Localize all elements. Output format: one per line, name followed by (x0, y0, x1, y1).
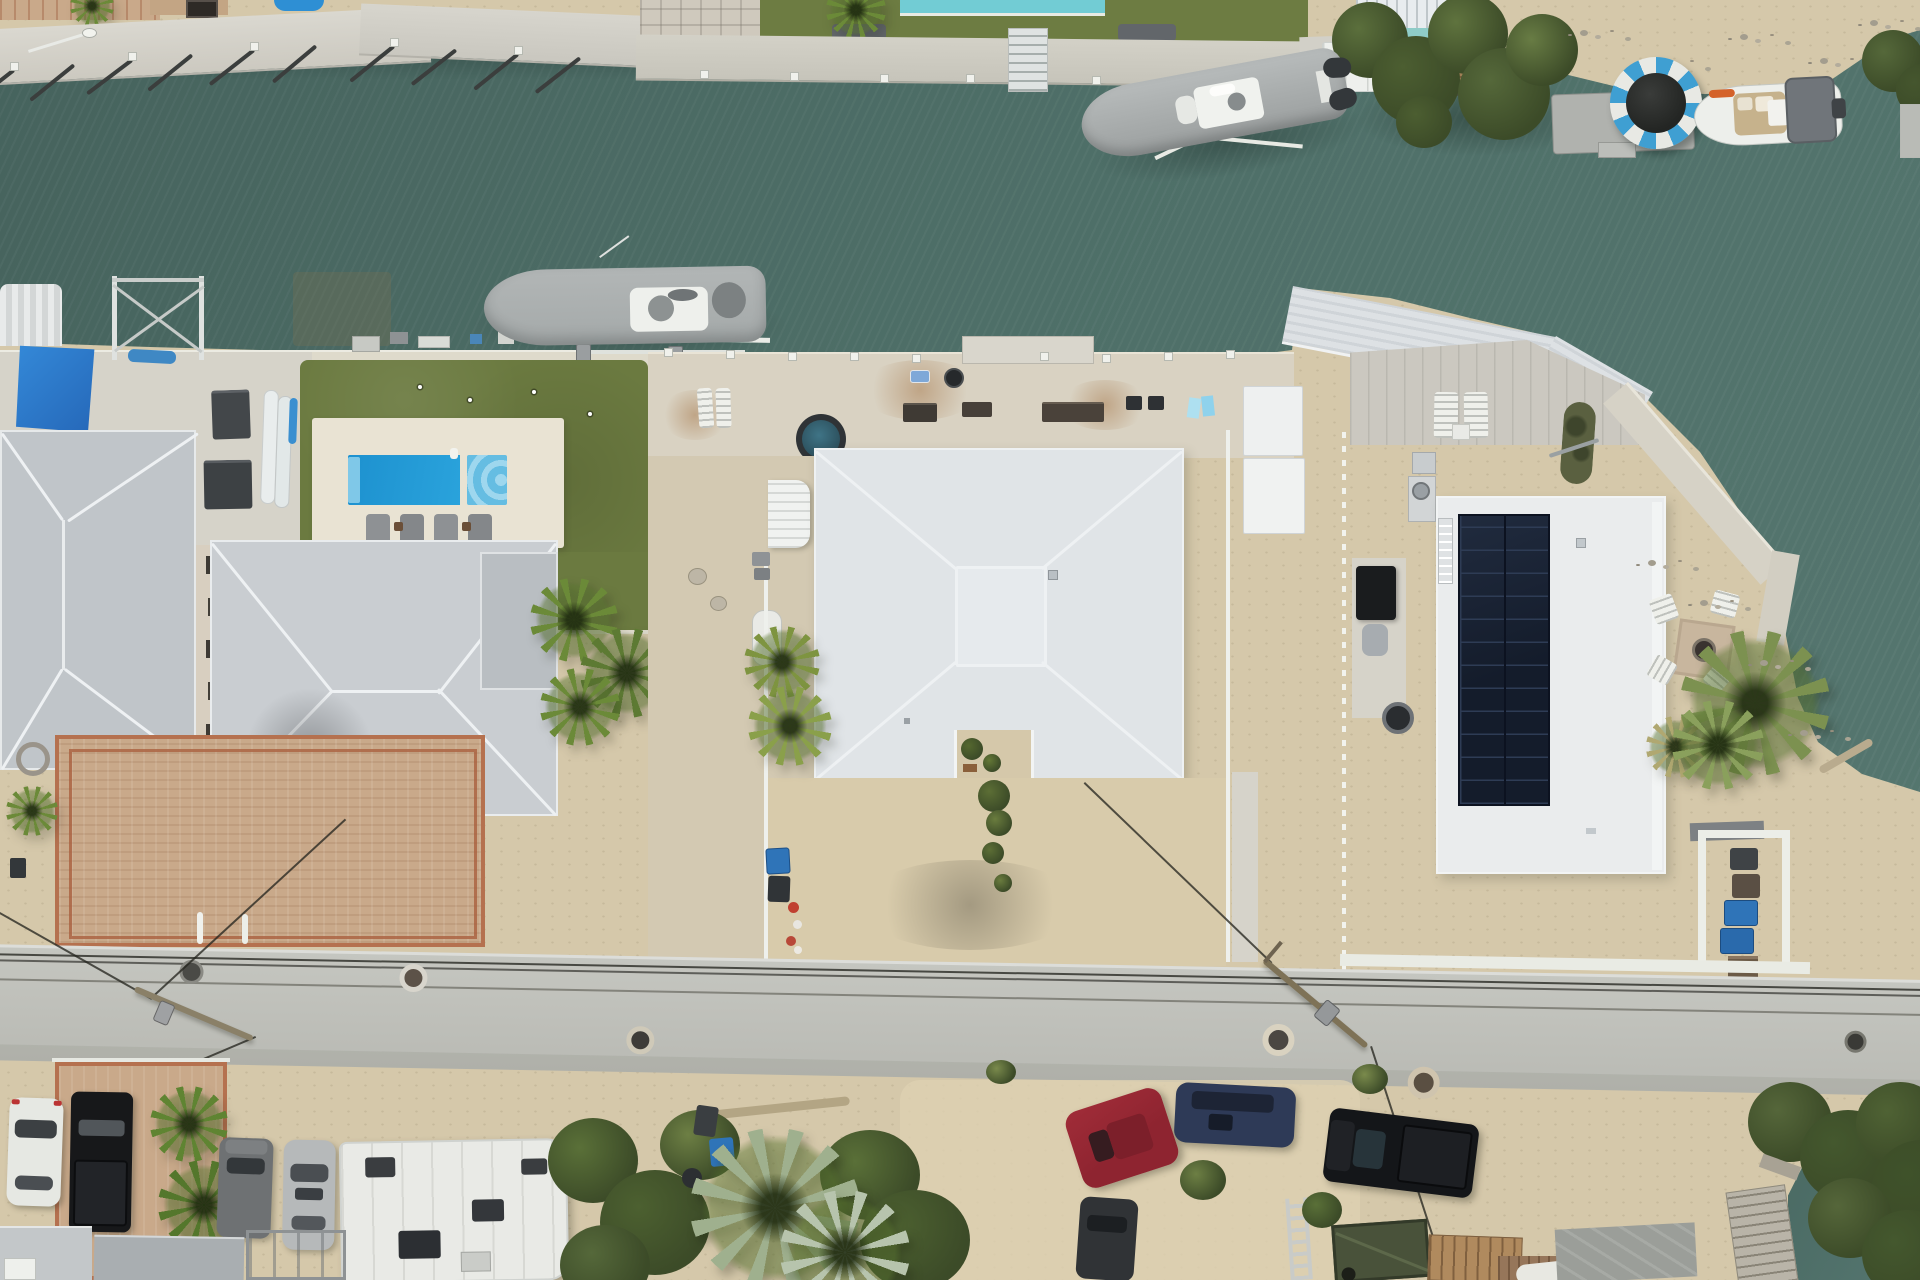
spa (467, 455, 507, 505)
rv-trailer (339, 1138, 569, 1280)
palm-tree (540, 668, 620, 746)
boat-lift-frame (112, 276, 204, 360)
roof-ridge (332, 690, 442, 693)
palm-tree (6, 786, 58, 836)
dock-piling (390, 38, 399, 47)
blue-kayak (128, 349, 177, 364)
recycle-bin (765, 847, 790, 874)
coconut-palm (1672, 700, 1764, 790)
dock-piling (790, 72, 799, 81)
roof-vent (904, 718, 910, 724)
white-hatchback-car (6, 1097, 64, 1207)
roof-vent (1586, 828, 1596, 834)
dock-piling (514, 46, 523, 55)
roof-hip (815, 450, 957, 570)
exhaust-fan (1382, 702, 1414, 734)
roof-walk-strip (1652, 502, 1662, 870)
yard-plant (978, 780, 1010, 812)
shore-rocks (1580, 30, 1588, 36)
shore-rocks (1800, 730, 1808, 736)
dock-piling (1226, 350, 1235, 359)
kids-toy-car (910, 370, 930, 383)
tree-canopy (1396, 96, 1452, 148)
shore-rocks (1760, 660, 1768, 666)
shore-rocks (1700, 600, 1708, 606)
courtyard-plant (983, 754, 1001, 772)
buoy-white (794, 946, 802, 954)
storage-shed (204, 460, 253, 510)
yard-plant (986, 810, 1012, 836)
trash-bin (693, 1105, 719, 1138)
car-windshield (290, 1164, 328, 1183)
dock-piling (1164, 352, 1173, 361)
neighbor-pool (900, 0, 1105, 16)
boat-bimini-cover (1784, 76, 1837, 145)
courtyard-item (963, 764, 977, 772)
golf-hole (588, 412, 592, 416)
trash-bin (768, 876, 791, 903)
shore-rocks (1820, 58, 1828, 64)
shore-rocks (1740, 34, 1748, 40)
truck-bed (1396, 1124, 1473, 1190)
manhole (1262, 1024, 1295, 1057)
blue-umbrella (274, 0, 324, 11)
car-windshield (15, 1119, 58, 1138)
patio-table (903, 403, 937, 422)
swimming-pool (348, 455, 462, 505)
array-divider (1504, 516, 1506, 804)
floating-dock-step (1598, 142, 1636, 158)
golf-hole (532, 390, 536, 394)
grill-tank (1362, 624, 1388, 656)
pool-steps (348, 457, 360, 503)
dock-piling (726, 350, 735, 359)
trampoline-mat (1626, 73, 1686, 133)
car-sunroof (295, 1188, 323, 1200)
dock-piling (966, 74, 975, 83)
buoy-red (788, 902, 799, 913)
dock-light-head (82, 28, 97, 38)
shore-rocks (1648, 560, 1656, 566)
dock-piling (880, 74, 889, 83)
far-right-mini-dock (1900, 104, 1920, 158)
yard-stain (860, 860, 1080, 950)
dock-piling (912, 354, 921, 363)
small-moored-boat (1692, 72, 1848, 156)
bin-enclosure-wall (1782, 830, 1790, 970)
yard-plant (994, 874, 1012, 892)
car-glass-band (1191, 1091, 1274, 1113)
equipment-box (1412, 452, 1436, 474)
white-bollard (242, 914, 248, 944)
gray-suv (216, 1137, 273, 1239)
paver-inner-border (69, 749, 477, 939)
paver-circle (688, 568, 707, 585)
roof-ridge (62, 520, 65, 670)
trailer-brace (1335, 1232, 1429, 1272)
roof-hip (815, 661, 957, 781)
aerial-photo-canvas (0, 0, 1920, 1280)
rv-roof-vent (521, 1158, 547, 1174)
car-hood (225, 1139, 267, 1154)
car-rear-glass (291, 1216, 325, 1231)
golf-hole (418, 385, 422, 389)
patio-bench (962, 402, 992, 417)
roof-hip (1041, 661, 1183, 781)
rv-solar-panel (398, 1230, 440, 1259)
golf-hole (468, 398, 472, 402)
dock-piling (1040, 352, 1049, 361)
outboard-motor (1831, 98, 1846, 119)
car-windshield (1087, 1215, 1128, 1234)
patio-console (1042, 402, 1104, 422)
fire-pit (944, 368, 964, 388)
roof-hip (67, 432, 199, 522)
white-shed-awning (768, 480, 810, 548)
buoy-red (786, 936, 796, 946)
bin-enclosure-wall (1698, 830, 1790, 838)
roof-vent (1576, 538, 1586, 548)
lift-beam (112, 278, 204, 282)
white-fence (1226, 430, 1230, 962)
dock-piling (788, 352, 797, 361)
manhole (179, 960, 203, 984)
middle-house-roof (814, 448, 1184, 780)
paver-driveway (55, 735, 485, 947)
dock-piling (10, 62, 19, 71)
fire-pit-ring (16, 742, 50, 776)
car-taillight (12, 1099, 20, 1104)
submerged-lift-platform (293, 272, 391, 346)
dark-suv (1075, 1196, 1139, 1280)
shed-roof (94, 1235, 245, 1280)
courtyard-plant (961, 738, 983, 760)
manhole (1844, 1031, 1866, 1053)
dock-box (352, 336, 380, 352)
scrub-bush (1302, 1192, 1342, 1228)
white-lounger (697, 388, 715, 429)
beach-towel (1201, 395, 1215, 416)
lounge-chair (1118, 24, 1176, 41)
dock-piling (664, 348, 673, 357)
left-house-roof (0, 430, 196, 770)
roof-ridge (955, 567, 958, 665)
trash-bin (1732, 874, 1760, 898)
truck-windshield (1352, 1128, 1386, 1169)
black-pickup-truck (69, 1091, 133, 1232)
green-utility-trailer (1331, 1219, 1431, 1280)
white-lounger (715, 388, 731, 428)
dock-piling (250, 42, 259, 51)
shade-sail (16, 344, 96, 434)
covered-boat-on-lift-center (479, 259, 771, 356)
weed-patch (1352, 1064, 1388, 1094)
ac-unit (754, 568, 770, 580)
dock-clutter (390, 332, 408, 344)
concrete-pier (962, 336, 1094, 364)
car-rear-glass (15, 1175, 53, 1190)
outboard-motor (1323, 57, 1352, 78)
yard-plant (982, 842, 1004, 864)
entry-courtyard (954, 730, 1034, 782)
white-post-fence (1342, 432, 1346, 984)
rooftop-structure (1243, 458, 1305, 534)
bin-enclosure-wall (1698, 830, 1706, 970)
rv-roof-vent (472, 1199, 504, 1222)
wire-fence-line (52, 1058, 230, 1062)
roof-ridge (1044, 567, 1047, 665)
navy-suv (1174, 1082, 1297, 1148)
car-windshield (227, 1157, 266, 1174)
scrub-bush (1180, 1160, 1226, 1200)
patio-chair (1126, 396, 1142, 410)
dock-piling (700, 70, 709, 79)
dock-piling (128, 52, 137, 61)
fire-pit-square (186, 0, 218, 18)
buoy-white (793, 920, 802, 929)
trash-bin (10, 858, 26, 878)
trailer-wheel (1341, 1267, 1356, 1280)
manhole (626, 1026, 655, 1055)
side-table (394, 522, 403, 531)
concrete-walkway (1232, 772, 1258, 962)
solar-house-roof (1436, 496, 1666, 874)
dock-gangway (1008, 28, 1048, 92)
ac-unit (4, 1258, 36, 1280)
rv-roof-vent (365, 1157, 395, 1178)
palm-tree (150, 1086, 228, 1162)
rooftop-structure (1243, 386, 1303, 456)
roof-center-panel (956, 567, 1046, 665)
truck-windshield (78, 1120, 124, 1137)
recycle-bin (1720, 928, 1754, 954)
recycle-bin (1724, 900, 1758, 926)
shore-rocks (1870, 20, 1878, 26)
pool-handrail (450, 448, 458, 459)
truck-bed (73, 1160, 128, 1227)
side-table (462, 522, 471, 531)
roof-access-ladder (1438, 518, 1453, 584)
dock-box (418, 336, 450, 348)
weed-patch (986, 1060, 1016, 1084)
rv-ac-unit (461, 1251, 491, 1272)
dock-piling (850, 352, 859, 361)
roof-hip (211, 543, 334, 694)
gray-tarp (1555, 1222, 1698, 1280)
water-trampoline (1610, 57, 1702, 149)
dock-piling (1102, 354, 1111, 363)
car-sunroof (1208, 1114, 1233, 1131)
ac-fan (1412, 482, 1430, 500)
ac-unit (752, 552, 770, 566)
black-grill-station (1356, 566, 1396, 620)
roof-ridge (956, 664, 1046, 667)
boat-canopy (0, 284, 62, 346)
truck-hood (1325, 1119, 1355, 1172)
tree-canopy (1506, 14, 1578, 86)
car-taillight (54, 1101, 62, 1106)
roof-hip (1041, 450, 1183, 570)
pool-divider (460, 455, 467, 505)
white-bollard (197, 912, 203, 944)
boat-bow-stripe (1709, 89, 1735, 98)
solar-panel-array (1458, 514, 1550, 806)
trash-bin (1730, 848, 1758, 870)
storage-shed (211, 389, 251, 439)
banana-palm (748, 686, 832, 766)
patio-chair (1148, 396, 1164, 410)
blue-kayak (288, 398, 298, 444)
deck-table (1452, 424, 1470, 440)
carport-frame (246, 1230, 346, 1280)
roof-hip (1, 433, 64, 522)
paver-circle (710, 596, 727, 611)
roof-vent (1048, 570, 1058, 580)
boat-seat (1737, 97, 1753, 111)
roof-ridge (956, 566, 1046, 569)
